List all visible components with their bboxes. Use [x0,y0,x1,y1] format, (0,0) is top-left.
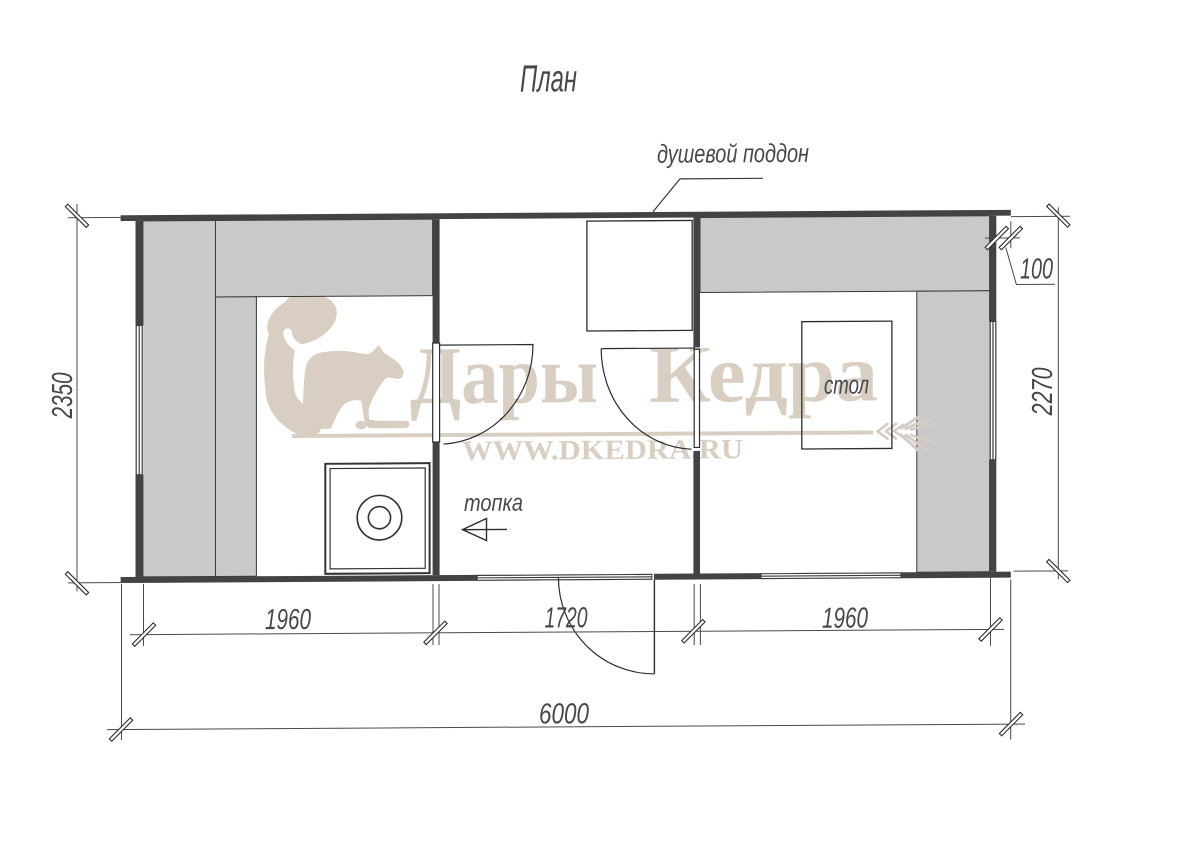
svg-text:100: 100 [1020,253,1053,285]
svg-text:2270: 2270 [1027,367,1059,416]
svg-text:топка: топка [464,490,523,517]
svg-text:WWW.DKEDRA.RU: WWW.DKEDRA.RU [462,434,743,467]
svg-text:2350: 2350 [47,372,79,419]
svg-text:стол: стол [824,369,869,399]
svg-text:1720: 1720 [545,602,588,634]
svg-text:План: План [520,58,577,100]
svg-text:душевой поддон: душевой поддон [657,138,809,169]
svg-text:6000: 6000 [539,698,589,730]
svg-text:1960: 1960 [265,604,311,636]
svg-text:1960: 1960 [822,602,868,634]
